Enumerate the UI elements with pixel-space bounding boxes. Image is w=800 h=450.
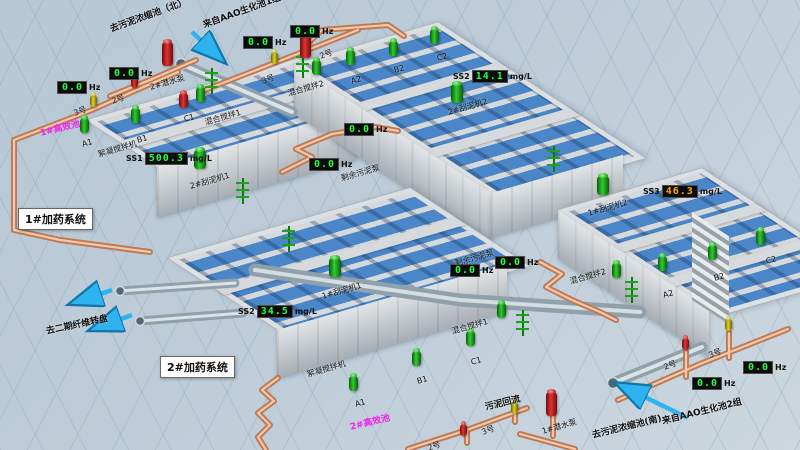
mixer-mix2-t2[interactable] xyxy=(612,263,621,278)
submersible-pump-1[interactable] xyxy=(546,392,557,416)
mixer-b1-t2[interactable] xyxy=(412,351,421,366)
mixer-b1-t1[interactable] xyxy=(131,108,140,123)
mixer-b2-t1[interactable] xyxy=(389,41,398,56)
mixer-mix1-t2[interactable] xyxy=(497,303,506,318)
arrow-to-fiber-disc-1 xyxy=(76,290,112,302)
hz-display: 0.0 Hz xyxy=(495,256,538,269)
ss2-display-b: SS2 34.5 mg/L xyxy=(238,305,317,318)
aerator-icon[interactable] xyxy=(205,68,218,94)
scraper-1-1[interactable] xyxy=(329,258,341,277)
hz-display: 0.0 Hz xyxy=(344,123,387,136)
system-box-2: 2#加药系统 xyxy=(160,356,235,378)
mixer-mix1-t1[interactable] xyxy=(196,87,205,102)
arrow-from-aao1 xyxy=(192,32,220,58)
scraper-2-2[interactable] xyxy=(451,84,463,103)
ss2-display-a: SS2 14.1 mg/L xyxy=(453,70,532,83)
valve-3-t1[interactable] xyxy=(90,95,97,107)
scada-plant-view: 0.0 Hz 0.0 Hz 0.0 Hz 0.0 Hz 0.0 Hz 0.0 H… xyxy=(0,0,800,450)
aerator-icon[interactable] xyxy=(282,226,295,252)
mixer-b2-t2[interactable] xyxy=(708,245,717,260)
hz-display: 0.0 Hz xyxy=(309,158,352,171)
mixer-c2-t2[interactable] xyxy=(756,230,765,245)
hz-display: 0.0 Hz xyxy=(290,25,333,38)
aerator-icon[interactable] xyxy=(547,146,560,172)
mixer-a1-t2[interactable] xyxy=(349,376,358,391)
valve-3-t2b[interactable] xyxy=(725,319,732,331)
ss3-display: SS3 46.3 mg/L xyxy=(643,185,722,198)
aerator-icon[interactable] xyxy=(516,310,529,336)
system-box-1: 1#加药系统 xyxy=(18,208,93,230)
mixer-c2-t1[interactable] xyxy=(430,29,439,44)
hz-display: 0.0 Hz xyxy=(243,36,286,49)
mixer-a1-t1[interactable] xyxy=(80,118,89,133)
valve-2-bottom[interactable] xyxy=(460,424,467,436)
aerator-icon[interactable] xyxy=(625,277,638,303)
valve-3-top[interactable] xyxy=(271,52,278,64)
aerator-icon[interactable] xyxy=(236,178,249,204)
hz-display: 0.0 Hz xyxy=(109,67,152,80)
mixer-mix2-t1[interactable] xyxy=(312,60,321,75)
valve-2-t2b[interactable] xyxy=(682,338,689,350)
hz-display: 0.0 Hz xyxy=(57,81,100,94)
hz-display: 0.0 Hz xyxy=(692,377,735,390)
mixer-a2-t1[interactable] xyxy=(346,50,355,65)
hz-display: 0.0 Hz xyxy=(743,361,786,374)
mixer-a2-t2[interactable] xyxy=(658,256,667,271)
mixer-c1-t2[interactable] xyxy=(466,331,475,346)
scraper-1-2[interactable] xyxy=(597,176,609,195)
ss1-display: SS1 500.3 mg/L xyxy=(126,152,212,165)
submersible-pump-2[interactable] xyxy=(162,42,173,66)
mixer-c1-t1[interactable] xyxy=(179,93,188,108)
